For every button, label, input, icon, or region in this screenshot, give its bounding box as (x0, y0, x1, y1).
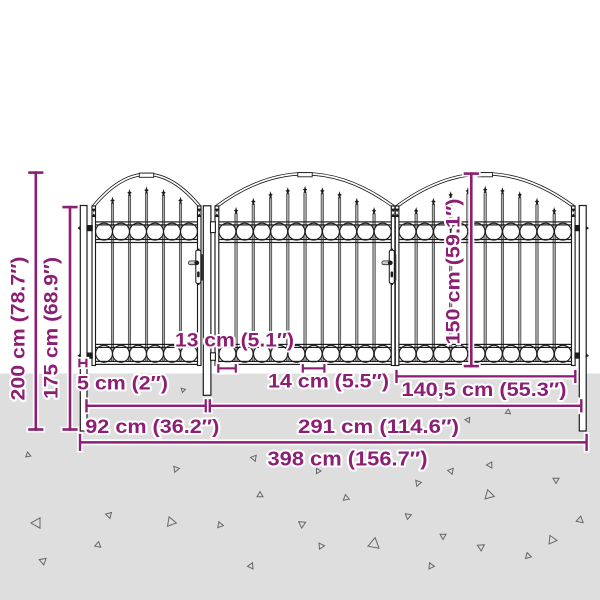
svg-text:140,5 cm (55.3″): 140,5 cm (55.3″) (402, 379, 567, 401)
svg-text:291 cm (114.6″): 291 cm (114.6″) (298, 416, 459, 438)
svg-text:200 cm (78.7″): 200 cm (78.7″) (8, 257, 30, 401)
svg-text:398 cm (156.7″): 398 cm (156.7″) (268, 447, 428, 470)
svg-text:175 cm (68.9″): 175 cm (68.9″) (41, 257, 63, 399)
svg-text:92 cm (36.2″): 92 cm (36.2″) (85, 416, 219, 438)
svg-text:13 cm (5.1″): 13 cm (5.1″) (175, 329, 294, 351)
svg-text:14 cm (5.5″): 14 cm (5.5″) (268, 371, 389, 393)
svg-text:5 cm (2″): 5 cm (2″) (77, 373, 168, 395)
svg-text:150 cm (59.1″): 150 cm (59.1″) (443, 199, 465, 345)
